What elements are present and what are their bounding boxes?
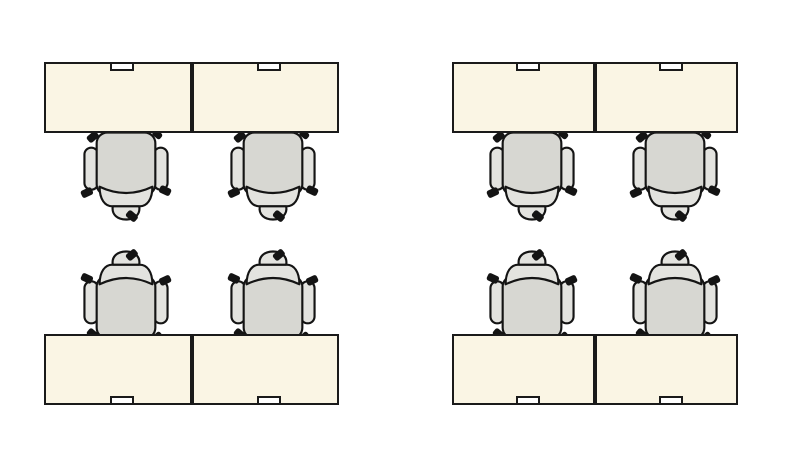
cable-grommet	[110, 62, 134, 71]
chair-seat	[645, 132, 704, 195]
desk-row-bottom-left	[44, 334, 339, 405]
office-chair-icon	[631, 250, 719, 340]
office-chair-icon	[488, 250, 576, 340]
desk-row-top-left	[44, 62, 339, 133]
desk	[595, 334, 738, 405]
cable-grommet	[257, 62, 281, 71]
chair-seat	[96, 276, 155, 339]
office-chair	[229, 131, 317, 221]
desk	[44, 62, 192, 133]
office-chair-icon	[229, 250, 317, 340]
office-chair-icon	[82, 250, 170, 340]
desk	[192, 62, 340, 133]
office-chair-icon	[631, 131, 719, 221]
desk	[192, 334, 340, 405]
office-chair-icon	[229, 131, 317, 221]
office-chair	[229, 250, 317, 340]
chair-seat	[502, 132, 561, 195]
cable-grommet	[516, 62, 540, 71]
cable-grommet	[516, 396, 540, 405]
desk	[44, 334, 192, 405]
desk-row-bottom-right	[452, 334, 738, 405]
desk	[452, 334, 595, 405]
office-chair	[631, 250, 719, 340]
chair-seat	[244, 276, 303, 339]
office-chair-icon	[488, 131, 576, 221]
office-chair	[82, 250, 170, 340]
chair-seat	[96, 132, 155, 195]
office-chair-icon	[82, 131, 170, 221]
cable-grommet	[659, 396, 683, 405]
cable-grommet	[659, 62, 683, 71]
office-chair	[82, 131, 170, 221]
cable-grommet	[257, 396, 281, 405]
office-chair	[488, 131, 576, 221]
office-chair	[488, 250, 576, 340]
desk-row-top-right	[452, 62, 738, 133]
office-chair	[631, 131, 719, 221]
desk	[452, 62, 595, 133]
cable-grommet	[110, 396, 134, 405]
chair-seat	[502, 276, 561, 339]
chair-seat	[244, 132, 303, 195]
desk	[595, 62, 738, 133]
chair-seat	[645, 276, 704, 339]
office-floor-plan	[0, 0, 789, 459]
